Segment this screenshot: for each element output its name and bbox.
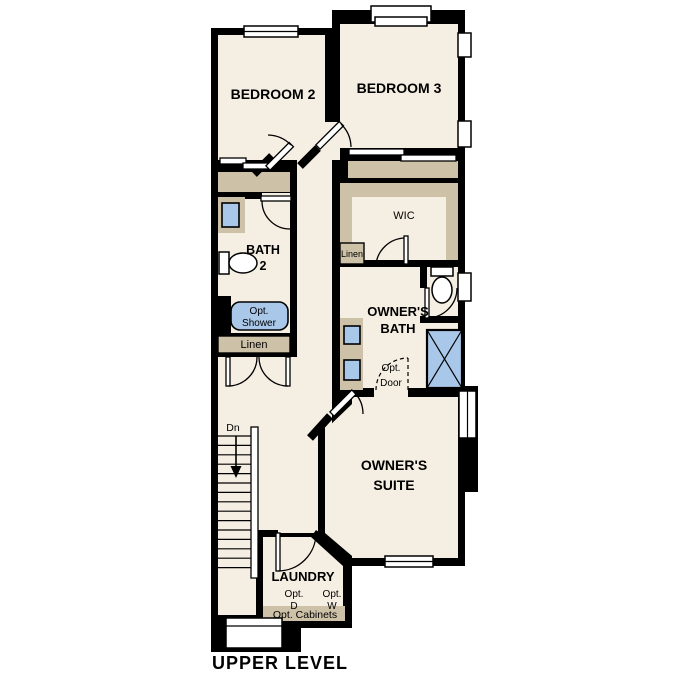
opt-dryer-label-line1: Opt. bbox=[285, 589, 304, 600]
bath2-label-line1: BATH bbox=[246, 243, 280, 257]
bedroom2-closet bbox=[218, 172, 290, 192]
bedroom3-side-window-2 bbox=[458, 121, 471, 147]
laundry-label: LAUNDRY bbox=[271, 569, 334, 584]
opt-door-label-line1: Opt. bbox=[382, 363, 401, 374]
wall-hall-suite bbox=[318, 425, 325, 537]
wall-toilet-compartment bbox=[420, 260, 427, 288]
floorplan-page: BEDROOM 2 BEDROOM 3 BATH 2 WIC Linen Opt… bbox=[0, 0, 687, 687]
bedroom2-closet-slider-1 bbox=[220, 158, 246, 164]
bath2-door-panel bbox=[261, 196, 291, 201]
wic-floor bbox=[352, 197, 446, 260]
wall-bath2-notch bbox=[211, 296, 231, 333]
bath2-sink bbox=[222, 203, 239, 227]
stair-floor bbox=[218, 430, 256, 615]
laundry-door-panel bbox=[276, 533, 280, 571]
laundry-bay-window bbox=[226, 618, 282, 648]
bedroom3-bay-window-sash bbox=[375, 17, 427, 26]
stair-railing bbox=[251, 427, 258, 578]
owners-toilet-bowl bbox=[432, 277, 452, 303]
bedroom2-label: BEDROOM 2 bbox=[231, 86, 316, 102]
bath2-toilet-tank bbox=[219, 252, 229, 274]
bath2-label-line2: 2 bbox=[260, 259, 267, 273]
bedroom3-label: BEDROOM 3 bbox=[357, 80, 442, 96]
owners-bath-label-line1: OWNER'S bbox=[367, 304, 429, 319]
owners-bath-sink-2 bbox=[344, 360, 360, 380]
opt-shower-label-line1: Opt. bbox=[250, 306, 269, 317]
wic-shelf-right bbox=[446, 183, 458, 260]
linen-lower-label: Linen bbox=[241, 339, 268, 351]
wic-shelf-top bbox=[340, 183, 458, 197]
wic-label: WIC bbox=[393, 210, 414, 222]
page-title: UPPER LEVEL bbox=[212, 653, 348, 673]
owners-bath-label-line2: BATH bbox=[380, 321, 415, 336]
owners-bath-window bbox=[458, 273, 471, 301]
wall-laundry-stub bbox=[256, 530, 278, 537]
stairs-dn-label: Dn bbox=[226, 422, 240, 434]
wic-door-panel bbox=[404, 236, 408, 264]
opt-door-label-line2: Door bbox=[380, 378, 402, 389]
floorplan-drawing: BEDROOM 2 BEDROOM 3 BATH 2 WIC Linen Opt… bbox=[0, 0, 687, 687]
linen-door-right-panel bbox=[286, 357, 290, 386]
bedroom3-closet bbox=[348, 161, 458, 178]
owners-bath-sink-1 bbox=[344, 326, 360, 344]
owners-suite-label-line1: OWNER'S bbox=[361, 457, 427, 473]
bedroom3-closet-slider-1 bbox=[349, 149, 404, 155]
owners-suite-label-line2: SUITE bbox=[373, 477, 414, 493]
hall-lower-floor bbox=[258, 430, 318, 533]
opt-washer-label-line1: Opt. bbox=[323, 589, 342, 600]
linen-door-left-panel bbox=[226, 357, 230, 386]
opt-shower-label-line2: Shower bbox=[242, 318, 277, 329]
opt-cabinets-label: Opt. Cabinets bbox=[273, 609, 337, 621]
linen-upper-label: Linen bbox=[341, 249, 363, 259]
hall-mid-floor bbox=[218, 357, 332, 430]
bedroom3-side-window-1 bbox=[458, 33, 471, 57]
owners-toilet-tank bbox=[431, 267, 453, 276]
bedroom3-closet-slider-2 bbox=[401, 155, 456, 161]
owners-bath-entry-opening bbox=[374, 388, 408, 397]
owners-shower bbox=[427, 330, 462, 388]
